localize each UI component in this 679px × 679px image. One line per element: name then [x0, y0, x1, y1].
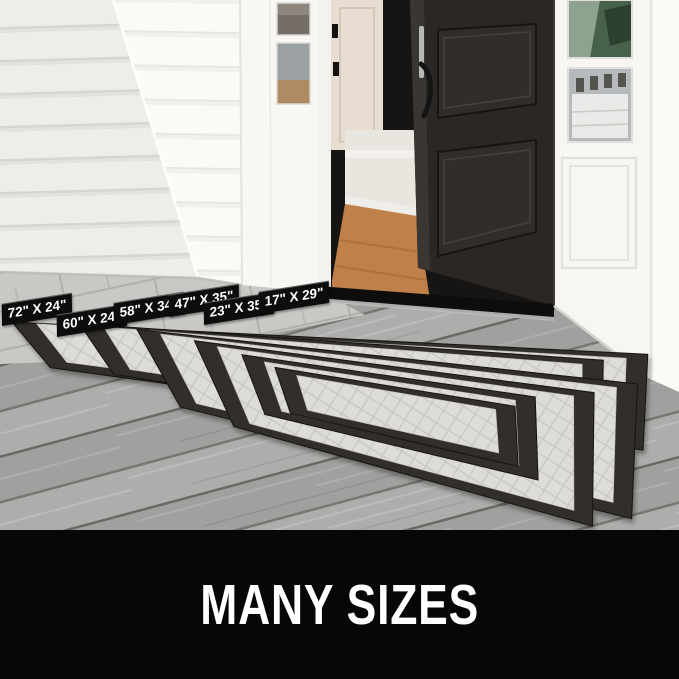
door-handle-bar	[419, 26, 424, 78]
product-image: 72" X 24" 60" X 24" 58" X 34" 47" X 35" …	[0, 0, 679, 679]
door-jamb-left	[318, 0, 331, 290]
door-hinge	[332, 24, 338, 38]
porch-photo: 72" X 24" 60" X 24" 58" X 34" 47" X 35" …	[0, 0, 679, 530]
bottom-banner: MANY SIZES	[0, 530, 679, 679]
door-hinge	[333, 62, 339, 76]
wall-right	[648, 0, 679, 392]
porch-scene	[0, 0, 679, 530]
sidelight-right-lower-panel	[562, 158, 636, 268]
banner-title: MANY SIZES	[200, 572, 479, 638]
garage-reflection	[572, 94, 628, 138]
